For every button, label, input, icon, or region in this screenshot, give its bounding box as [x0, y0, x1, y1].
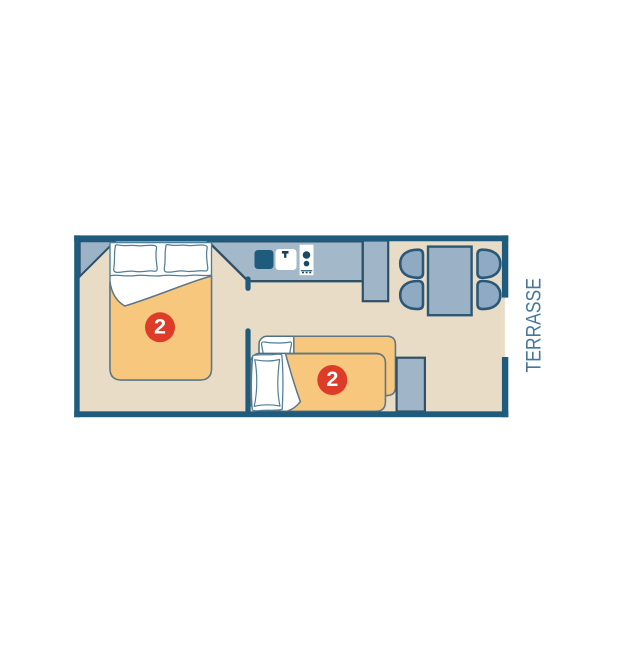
svg-text:2: 2: [154, 314, 166, 338]
svg-text:2: 2: [326, 367, 338, 391]
svg-text:TERRASSE: TERRASSE: [522, 278, 545, 373]
